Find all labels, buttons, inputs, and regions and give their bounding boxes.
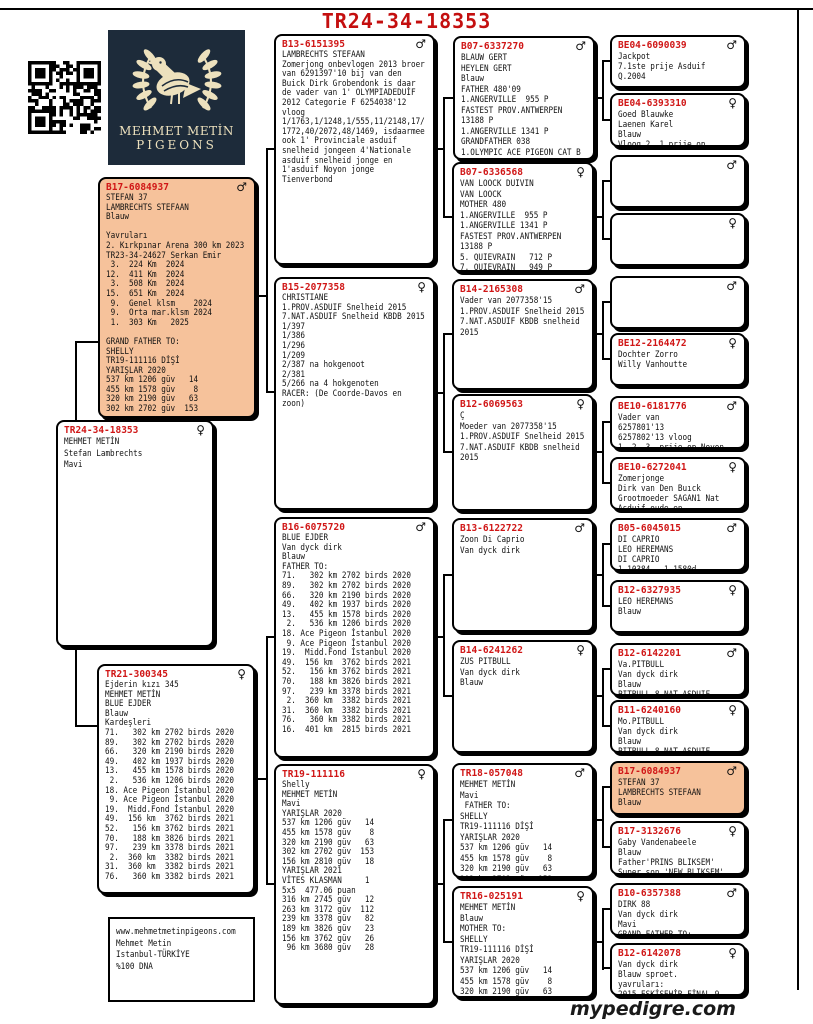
ring-number: B12-6142201: [618, 647, 738, 660]
pedigree-box-father[interactable]: ♂ B17-6084937 STEFAN 37 LAMBRECHTS STEFA…: [98, 177, 256, 418]
pedigree-box-gg5[interactable]: ♂: [610, 276, 746, 329]
female-icon: ♀: [237, 668, 246, 681]
male-icon: ♂: [575, 40, 586, 53]
pedigree-box-pgf[interactable]: ♂ B13-6151395 LAMBRECHTS STEFAAN Zomerjo…: [274, 34, 435, 265]
ring-number: B17-3132676: [618, 825, 738, 838]
pedigree-box-g4[interactable]: ♀ B12-6069563 Ç Moeder van 2077358'15 1.…: [452, 394, 594, 511]
pedigree-connector-line: [594, 695, 603, 697]
pedigree-connector-line: [602, 60, 610, 62]
pedigree-connector-line: [602, 60, 604, 121]
female-icon: ♀: [196, 424, 205, 437]
pedigree-connector-line: [594, 819, 603, 821]
male-icon: ♂: [415, 38, 426, 51]
pedigree-connector-line: [602, 786, 610, 788]
ring-number: B14-2165308: [460, 283, 586, 296]
pigeon-details: DI CAPRIO LEO HEREMANS DI CAPRIO 1.10384…: [618, 535, 740, 571]
pedigree-connector-line: [443, 97, 453, 99]
pedigree-connector-line: [443, 97, 445, 218]
ring-number: B12-6142078: [618, 947, 738, 960]
female-icon: ♀: [728, 97, 737, 110]
male-icon: ♂: [726, 280, 737, 293]
pedigree-box-gg16[interactable]: ♀ B12-6142078 Van dyck dirk Blauw sproet…: [610, 943, 746, 996]
pedigree-box-mother[interactable]: ♀ TR21-300345 Ejderin kızı 345 MEHMET ME…: [97, 664, 255, 894]
pedigree-box-g8[interactable]: ♀ TR16-025191 MEHMET METİN Blauw MOTHER …: [452, 886, 594, 998]
pigeon-details: Va.PITBULL Van dyck dirk Blauw PITBULL 8…: [618, 660, 740, 696]
pedigree-connector-line: [602, 238, 610, 240]
ring-number: B12-6327935: [618, 584, 738, 597]
pedigree-box-g5[interactable]: ♂ B13-6122722 Zoon Di Caprio Van dyck di…: [452, 518, 594, 632]
pedigree-connector-line: [602, 967, 610, 969]
pedigree-connector-line: [266, 391, 274, 393]
ring-number: TR24-34-18353: [64, 424, 206, 437]
ring-number: B05-6045015: [618, 522, 738, 535]
pedigree-connector-line: [602, 358, 610, 360]
pedigree-connector-line: [602, 786, 604, 848]
loft-logo: MEHMET METİN PIGEONS: [108, 30, 245, 165]
watermark-logo: mypedigre.com: [570, 998, 736, 1020]
pedigree-connector-line: [443, 819, 445, 943]
pigeon-details: Jackpot 7.1ste prije Asduif Q.2004: [618, 52, 740, 82]
pigeon-details: STEFAN 37 LAMBRECHTS STEFAAN Blauw: [618, 778, 740, 808]
male-icon: ♂: [726, 159, 737, 172]
female-icon: ♀: [728, 584, 737, 597]
logo-name: MEHMET METİN: [108, 124, 245, 138]
pedigree-box-gg3[interactable]: ♂: [610, 155, 746, 208]
pigeon-details: BLAUW GERT HEYLEN GERT Blauw FATHER 480'…: [461, 53, 590, 158]
pigeon-details: Zomerjonge Dirk van Den Buıck Grootmoede…: [618, 474, 740, 510]
page-frame-right: [797, 8, 799, 990]
pigeon-details: CHRISTIANE 1.PROV.ASDUIF Snelheid 2015 7…: [282, 294, 430, 409]
female-icon: ♀: [728, 704, 737, 717]
pedigree-connector-line: [594, 941, 603, 943]
pigeon-details: MEHMET METİN Mavi FATHER TO: SHELLY TR19…: [460, 780, 589, 878]
contact-details: www.mehmetmetinpigeons.com Mehmet Metin …: [116, 927, 250, 973]
ring-number: B11-6240160: [618, 704, 738, 717]
pedigree-connector-line: [266, 148, 274, 150]
pigeon-logo-icon: [117, 34, 237, 118]
male-icon: ♂: [726, 522, 737, 535]
female-icon: ♀: [576, 398, 585, 411]
pedigree-box-g1[interactable]: ♂ B07-6337270 BLAUW GERT HEYLEN GERT Bla…: [453, 36, 595, 160]
pedigree-connector-line: [266, 883, 274, 885]
female-icon: ♀: [417, 281, 426, 294]
pedigree-box-gg1[interactable]: ♂ BE04-6090039 Jackpot 7.1ste prije Asdu…: [610, 35, 746, 88]
pedigree-box-gg7[interactable]: ♂ BE10-6181776 Vader van 6257801'13 6257…: [610, 396, 746, 449]
male-icon: ♂: [726, 400, 737, 413]
pedigree-box-gg15[interactable]: ♂ B10-6357388 DIRK 88 Van dyck dirk Mavi…: [610, 883, 746, 936]
ring-number: B07-6336568: [460, 166, 586, 179]
ring-number: B07-6337270: [461, 40, 587, 53]
pigeon-details: MEHMET METİN Stefan Lambrechts Mavi: [64, 437, 209, 472]
pedigree-box-gg6[interactable]: ♀ BE12-2164472 Dochter Zorro Willy Vanho…: [610, 333, 746, 386]
pigeon-details: BLUE EJDER Van dyck dirk Blauw FATHER TO…: [282, 534, 430, 735]
pedigree-connector-line: [602, 668, 610, 670]
male-icon: ♂: [415, 521, 426, 534]
pedigree-connector-line: [594, 333, 603, 335]
ring-number: B13-6122722: [460, 522, 586, 535]
pigeon-details: VAN LOOCK DUIVIN VAN LOOCK MOTHER 480 1.…: [460, 179, 589, 272]
male-icon: ♂: [574, 283, 585, 296]
male-icon: ♂: [726, 765, 737, 778]
female-icon: ♀: [728, 217, 737, 230]
pedigree-box-mgm[interactable]: ♀ TR19-111116 Shelly MEHMET METİN Mavi Y…: [274, 764, 435, 1005]
male-icon: ♂: [574, 767, 585, 780]
pigeon-details: LEO HEREMANS Blauw: [618, 597, 740, 617]
pedigree-page: TR24-34-18353: [0, 0, 813, 1024]
pedigree-box-gg4[interactable]: ♀: [610, 213, 746, 266]
male-icon: ♂: [574, 522, 585, 535]
pedigree-box-g2[interactable]: ♀ B07-6336568 VAN LOOCK DUIVIN VAN LOOCK…: [452, 162, 594, 272]
ring-number: B17-6084937: [618, 765, 738, 778]
pedigree-connector-line: [75, 725, 98, 727]
pigeon-details: Van dyck dirk Blauw sproet. yavruları: 2…: [618, 960, 740, 996]
female-icon: ♀: [576, 166, 585, 179]
pedigree-box-gg13[interactable]: ♂ B17-6084937 STEFAN 37 LAMBRECHTS STEFA…: [610, 761, 746, 815]
pedigree-box-gg8[interactable]: ♀ BE10-6272041 Zomerjonge Dirk van Den B…: [610, 457, 746, 510]
pedigree-connector-line: [602, 668, 604, 727]
pigeon-details: Goed Blauwke Laenen Karel Blauw Vloog 2.…: [618, 110, 740, 147]
pedigree-connector-line: [602, 119, 610, 121]
pigeon-details: STEFAN 37 LAMBRECHTS STEFAAN Blauw Yavru…: [106, 194, 251, 415]
pedigree-box-gg10[interactable]: ♀ B12-6327935 LEO HEREMANS Blauw: [610, 580, 746, 633]
female-icon: ♀: [728, 947, 737, 960]
pigeon-details: ZUS PITBULL Van dyck dirk Blauw: [460, 657, 589, 689]
pedigree-connector-line: [594, 574, 603, 576]
ring-number: BE04-6393310: [618, 97, 738, 110]
pedigree-box-gg11[interactable]: ♂ B12-6142201 Va.PITBULL Van dyck dirk B…: [610, 643, 746, 696]
pedigree-connector-line: [602, 180, 610, 182]
pedigree-connector-line: [435, 883, 444, 885]
pedigree-connector-line: [594, 97, 603, 99]
pedigree-connector-line: [266, 636, 274, 638]
female-icon: ♀: [728, 337, 737, 350]
pedigree-connector-line: [602, 846, 610, 848]
ring-number: B12-6069563: [460, 398, 586, 411]
male-icon: ♂: [726, 647, 737, 660]
pigeon-details: Mo.PITBULL Van dyck dirk Blauw PITBULL 8…: [618, 717, 740, 753]
female-icon: ♀: [728, 461, 737, 474]
pedigree-connector-line: [602, 908, 604, 970]
pigeon-details: Ejderin kızı 345 MEHMET METİN BLUE EJDER…: [105, 681, 250, 882]
pedigree-connector-line: [602, 482, 610, 484]
pedigree-connector-line: [266, 148, 268, 393]
pigeon-details: Dochter Zorro Willy Vanhoutte: [618, 350, 740, 370]
pigeon-details: MEHMET METİN Blauw MOTHER TO: SHELLY TR1…: [460, 903, 589, 998]
pedigree-connector-line: [435, 148, 444, 150]
pedigree-connector-line: [256, 295, 266, 297]
pedigree-connector-line: [602, 725, 610, 727]
female-icon: ♀: [576, 890, 585, 903]
pedigree-box-gg12[interactable]: ♀ B11-6240160 Mo.PITBULL Van dyck dirk B…: [610, 700, 746, 753]
pigeon-details: Gaby Vandenabeele Blauw Father'PRINS BLI…: [618, 838, 740, 875]
ring-number: BE04-6090039: [618, 39, 738, 52]
pedigree-connector-line: [594, 451, 603, 453]
page-title: TR24-34-18353: [0, 10, 813, 32]
female-icon: ♀: [728, 825, 737, 838]
pedigree-box-gg14[interactable]: ♀ B17-3132676 Gaby Vandenabeele Blauw Fa…: [610, 821, 746, 875]
pedigree-box-gg2[interactable]: ♀ BE04-6393310 Goed Blauwke Laenen Karel…: [610, 93, 746, 147]
logo-subname: PIGEONS: [108, 138, 245, 152]
pedigree-connector-line: [602, 421, 610, 423]
pedigree-box-g7[interactable]: ♂ TR18-057048 MEHMET METİN Mavi FATHER T…: [452, 763, 594, 878]
pedigree-box-gg9[interactable]: ♂ B05-6045015 DI CAPRIO LEO HEREMANS DI …: [610, 518, 746, 571]
pigeon-details: DIRK 88 Van dyck dirk Mavi GRAND FATHER …: [618, 900, 740, 936]
pedigree-box-mgf[interactable]: ♂ B16-6075720 BLUE EJDER Van dyck dirk B…: [274, 517, 435, 758]
male-icon: ♂: [236, 181, 247, 194]
male-icon: ♂: [726, 887, 737, 900]
pedigree-connector-line: [435, 392, 444, 394]
pedigree-connector-line: [256, 778, 266, 780]
ring-number: TR16-025191: [460, 890, 586, 903]
pigeon-details: Vader van 6257801'13 6257802'13 vloog 1.…: [618, 413, 740, 449]
pedigree-connector-line: [602, 605, 610, 607]
female-icon: ♀: [576, 644, 585, 657]
pigeon-details: Shelly MEHMET METİN Mavi YARIŞLAR 2020 5…: [282, 781, 430, 954]
pedigree-connector-line: [602, 301, 610, 303]
pedigree-box-g6[interactable]: ♀ B14-6241262 ZUS PITBULL Van dyck dirk …: [452, 640, 594, 753]
pedigree-connector-line: [75, 341, 98, 343]
pedigree-box-subject[interactable]: ♀ TR24-34-18353 MEHMET METİN Stefan Lamb…: [56, 420, 214, 647]
ring-number: BE12-2164472: [618, 337, 738, 350]
ring-number: BE10-6181776: [618, 400, 738, 413]
pedigree-connector-line: [602, 301, 604, 360]
pedigree-connector-line: [602, 180, 604, 240]
female-icon: ♀: [417, 768, 426, 781]
pedigree-connector-line: [602, 908, 610, 910]
pedigree-connector-line: [435, 636, 444, 638]
ring-number: TR18-057048: [460, 767, 586, 780]
pigeon-details: LAMBRECHTS STEFAAN Zomerjong onbevlogen …: [282, 51, 430, 185]
pedigree-box-g3[interactable]: ♂ B14-2165308 Vader van 2077358'15 1.PRO…: [452, 279, 594, 390]
contact-info-box: www.mehmetmetinpigeons.com Mehmet Metin …: [108, 917, 255, 1002]
qr-code-icon: [28, 61, 101, 134]
ring-number: B14-6241262: [460, 644, 586, 657]
pedigree-connector-line: [602, 543, 610, 545]
pedigree-connector-line: [266, 636, 268, 885]
ring-number: BE10-6272041: [618, 461, 738, 474]
pigeon-details: Ç Moeder van 2077358'15 1.PROV.ASDUIF Sn…: [460, 411, 589, 464]
male-icon: ♂: [726, 39, 737, 52]
pigeon-details: Vader van 2077358'15 1.PROV.ASDUIF Snelh…: [460, 296, 589, 338]
pedigree-box-pgm[interactable]: ♀ B15-2077358 CHRISTIANE 1.PROV.ASDUIF S…: [274, 277, 435, 510]
ring-number: B10-6357388: [618, 887, 738, 900]
pigeon-details: Zoon Di Caprio Van dyck dirk: [460, 535, 589, 556]
pedigree-connector-line: [594, 216, 603, 218]
